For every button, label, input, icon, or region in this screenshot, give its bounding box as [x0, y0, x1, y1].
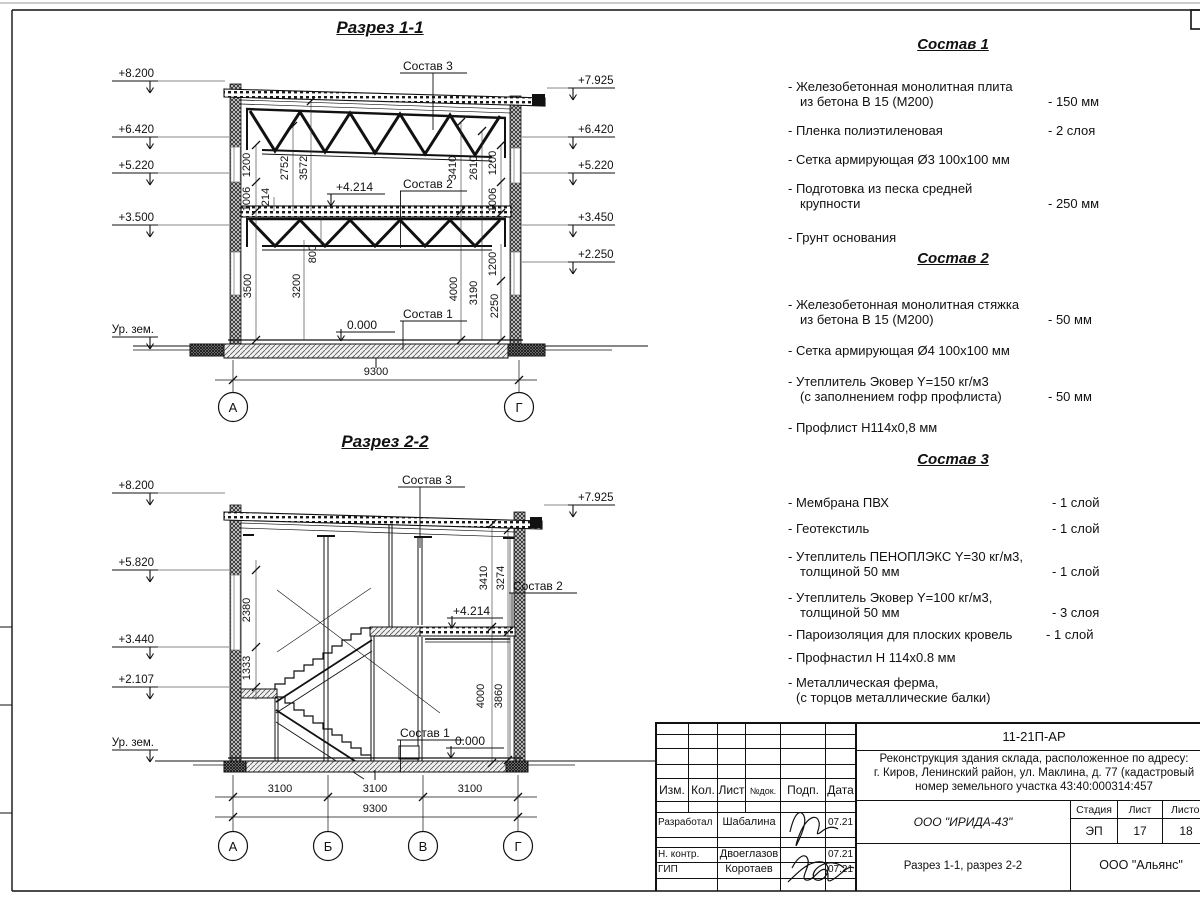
sheet-title: Разрез 1-1, разрез 2-2 [857, 860, 1069, 872]
dim-text: 1333 [241, 656, 253, 680]
elev-mark: +5.220 [119, 160, 155, 172]
dim-total-s2: 9300 [363, 803, 387, 815]
elev-mark: +3.450 [578, 212, 614, 224]
stage-value: ЭП [1071, 824, 1117, 838]
project-line: г. Киров, Ленинский район, ул. Маклина, … [857, 767, 1200, 779]
section-2-2-title: Разрез 2-2 [335, 432, 435, 452]
project-line: номер земельного участка 43:40:000314:45… [857, 781, 1200, 793]
list-value: - 3 слоя [1052, 605, 1099, 620]
s2-right-marks [544, 505, 615, 517]
elev-mark: +5.820 [119, 557, 155, 569]
list-value: - 50 мм [1048, 312, 1092, 327]
list-item: - Металлическая ферма, [788, 675, 938, 690]
dim-text: 2380 [241, 598, 253, 622]
list-value: - 1 слой [1052, 495, 1100, 510]
elev-mark: +8.200 [119, 68, 155, 80]
dim-text: 3572 [298, 156, 310, 180]
tb-header: №док. [746, 786, 780, 796]
dim-text: 3410 [478, 566, 490, 590]
tb-date: 07.21 [826, 817, 855, 828]
leader-label: Состав 3 [402, 473, 452, 487]
list-item: (с торцов металлические балки) [796, 690, 991, 705]
dim-text: 3200 [291, 274, 303, 298]
axis-label: А [229, 400, 238, 415]
axis-label: В [419, 839, 428, 854]
elev-mark: Ур. зем. [112, 324, 154, 336]
tb-header: Кол. [689, 783, 717, 797]
elev-mark: +2.250 [578, 249, 614, 261]
sheet-value: 17 [1118, 824, 1162, 838]
list-value: - 250 мм [1048, 196, 1099, 211]
axis-label: А [229, 839, 238, 854]
mid-floor-slab [241, 206, 511, 217]
dim-text: 3190 [468, 281, 480, 305]
dim-text: 2250 [489, 294, 501, 318]
dim-text: 4000 [448, 277, 460, 301]
foundation [133, 340, 648, 368]
list-item: крупности [800, 196, 860, 211]
drawing-canvas: 9300 А Г +8.200 +6.420 +5.220 +3.500 Ур.… [0, 0, 1200, 900]
elev-mark: +7.925 [578, 75, 614, 87]
dim-text: 3100 [458, 783, 482, 795]
elev-mark: +8.200 [119, 480, 155, 492]
dim-text: 3860 [493, 684, 505, 708]
stair-landing-slab [370, 627, 420, 636]
mid-landing [241, 689, 277, 698]
axis-label: Г [515, 400, 522, 415]
elev-mid-label: +4.214 [453, 604, 490, 618]
roof-slab [224, 512, 542, 529]
dim-text: 1006 [487, 188, 499, 212]
section-1-1-drawing: 9300 А Г +8.200 +6.420 +5.220 +3.500 Ур.… [112, 59, 648, 422]
dim-text: 1200 [487, 252, 499, 276]
elev-mark: +3.440 [119, 634, 155, 646]
tb-date: 07.21 [826, 849, 855, 860]
foundation [155, 758, 655, 780]
company-name: ООО "Альянс" [1071, 858, 1200, 872]
list-item: - Профлист Н114х0,8 мм [788, 420, 937, 435]
tb-header: Дата [826, 783, 855, 797]
elev-mark: +2.107 [119, 674, 155, 686]
tb-header: Лист [718, 783, 745, 797]
dim-text: 214 [260, 188, 272, 206]
project-line: Реконструкция здания склада, расположенн… [857, 753, 1200, 765]
list-item: - Сетка армирующая Ø4 100х100 мм [788, 343, 1010, 358]
list-item: - Грунт основания [788, 230, 896, 245]
tb-role: Н. контр. [658, 849, 699, 860]
leader-label: Состав 1 [400, 726, 450, 740]
dim-text: 1200 [241, 153, 253, 177]
list-item: из бетона В 15 (М200) [800, 94, 934, 109]
plinth [399, 746, 419, 759]
elev-mid-label: +4.214 [336, 180, 373, 194]
s1-right-marks [522, 88, 615, 274]
list-value: - 1 слой [1046, 627, 1094, 642]
list-item: - Утеплитель Эковер Y=100 кг/м3, [788, 590, 992, 605]
list-item: (с заполнением гофр профлиста) [800, 389, 1002, 404]
dim-text: 1200 [487, 151, 499, 175]
list-value: - 150 мм [1048, 94, 1099, 109]
section-1-1-title: Разрез 1-1 [330, 18, 430, 38]
elev-mark: Ур. зем. [112, 737, 154, 749]
list-item: - Геотекстиль [788, 521, 869, 536]
s1-axis-bubbles [219, 393, 534, 422]
s2-dim-chains [256, 524, 508, 763]
elev-mark: +7.925 [578, 492, 614, 504]
dim-text: 2610 [468, 156, 480, 180]
elev-zero-label: 0.000 [347, 318, 377, 332]
dim-text: 3100 [268, 783, 292, 795]
doc-code: 11-21П-АР [857, 729, 1200, 744]
sheet-label: Лист [1118, 804, 1162, 816]
drawing-sheet: 9300 А Г +8.200 +6.420 +5.220 +3.500 Ур.… [0, 0, 1200, 900]
list-title: Состав 1 [768, 36, 1138, 53]
s1-dim-ticks [252, 97, 505, 344]
s2-dim-ticks [252, 520, 512, 767]
list-value: - 50 мм [1048, 389, 1092, 404]
list-item: из бетона В 15 (М200) [800, 312, 934, 327]
stage-label: Стадия [1071, 804, 1117, 816]
leader-label: Состав 3 [403, 59, 453, 73]
frame-corner-box [1191, 10, 1200, 29]
dim-text: 3410 [447, 156, 459, 180]
list-item: - Профнастил Н 114х0.8 мм [788, 650, 956, 665]
list-value: - 1 слой [1052, 521, 1100, 536]
list-item: толщиной 50 мм [800, 605, 900, 620]
tb-header: Подп. [781, 783, 825, 797]
list-item: - Железобетонная монолитная плита [788, 79, 1013, 94]
sheets-label: Листов [1163, 804, 1200, 816]
sheets-value: 18 [1163, 824, 1200, 838]
list-value: - 1 слой [1052, 564, 1100, 579]
dim-text: 4000 [475, 684, 487, 708]
list-item: - Железобетонная монолитная стяжка [788, 297, 1019, 312]
list-item: - Пароизоляция для плоских кровель [788, 627, 1012, 642]
elev-mark: +5.220 [578, 160, 614, 172]
list-item: - Подготовка из песка средней [788, 181, 972, 196]
dim-text: 2752 [279, 156, 291, 180]
tb-name: Шабалина [718, 816, 780, 828]
elev-mark: +6.420 [119, 124, 155, 136]
tb-date: 07.21 [826, 864, 855, 875]
leader-label: Состав 2 [403, 177, 453, 191]
list-item: - Сетка армирующая Ø3 100х100 мм [788, 152, 1010, 167]
roof-truss [246, 109, 506, 161]
tb-header: Изм. [656, 783, 688, 797]
dim-total-s1: 9300 [364, 366, 388, 378]
roof-end-cap [530, 517, 542, 528]
s2-left-marks [112, 493, 229, 762]
list-title: Состав 2 [768, 250, 1138, 267]
axis-label: Г [514, 839, 521, 854]
dim-text: 3100 [363, 783, 387, 795]
leader-label: Состав 2 [513, 579, 563, 593]
dim-text: 3274 [495, 566, 507, 590]
s2-axis-bubbles [219, 832, 533, 861]
list-item: - Пленка полиэтиленовая [788, 123, 943, 138]
list-title: Состав 3 [768, 451, 1138, 468]
tb-role: ГИП [658, 864, 678, 875]
elev-zero-label: 0.000 [455, 734, 485, 748]
leader-label: Состав 1 [403, 307, 453, 321]
list-item: - Мембрана ПВХ [788, 495, 889, 510]
floor-slab [420, 627, 515, 636]
list-item: - Утеплитель ПЕНОПЛЭКС Y=30 кг/м3, [788, 549, 1023, 564]
tb-name: Коротаев [718, 863, 780, 875]
list-item: толщиной 50 мм [800, 564, 900, 579]
axis-label: Б [324, 839, 333, 854]
elev-mark: +3.500 [119, 212, 155, 224]
list-item: - Утеплитель Эковер Y=150 кг/м3 [788, 374, 989, 389]
dim-text: 1006 [241, 187, 253, 211]
dim-text: 800 [307, 245, 319, 263]
section-2-2-drawing: 3100 3100 3100 9300 А Б В Г +8.200 +5.82… [112, 473, 655, 861]
tb-name: Двоеглазов [718, 848, 780, 860]
elev-mark: +6.420 [578, 124, 614, 136]
mid-truss [246, 219, 506, 250]
roof-slab [224, 89, 545, 106]
org-name: ООО "ИРИДА-43" [857, 815, 1069, 829]
roof-end-cap [532, 94, 545, 106]
list-value: - 2 слоя [1048, 123, 1095, 138]
tb-role: Разработал [658, 817, 712, 828]
dim-text: 3500 [242, 274, 254, 298]
